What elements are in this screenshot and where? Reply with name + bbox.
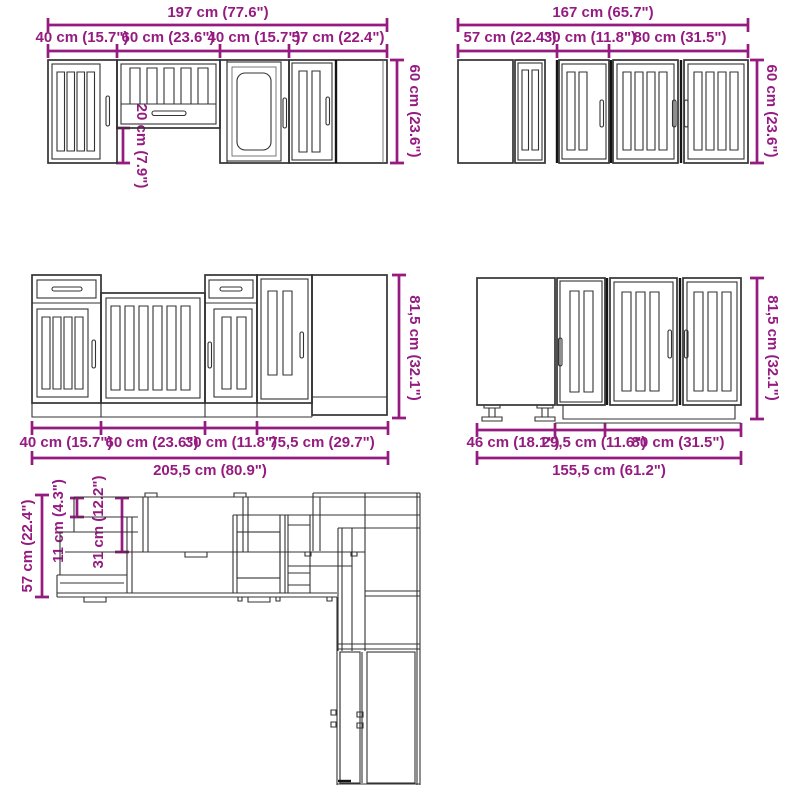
base-cabinet-29 [557, 278, 605, 405]
plan-top-outline [74, 493, 420, 497]
left-door-handle [668, 330, 672, 358]
base-cabinet-80-double-door [610, 278, 741, 405]
height-dimension-line [750, 278, 764, 419]
door-slats [42, 317, 83, 389]
wall-cabinet-80-double-door [613, 60, 748, 163]
total-width-label: 197 cm (77.6") [167, 4, 268, 21]
height-dimension-line [390, 60, 404, 163]
side-panel [477, 278, 555, 405]
segment-width-label: 40 cm (15.7") [36, 29, 129, 46]
right-door-slats [694, 72, 738, 150]
base-cabinet-40-drawer-door [32, 275, 101, 403]
wall-run-left: 197 cm (77.6") 40 cm (15.7") 60 cm (23.6… [36, 4, 424, 188]
drawer-front [209, 280, 253, 298]
glass-panel [237, 73, 271, 150]
base-corner-cabinet-75 [257, 275, 387, 415]
plan-hinge-tabs [331, 710, 363, 728]
door-panel [37, 309, 88, 397]
wall-corner-side-panel-57 [458, 60, 545, 163]
plan-view-dimensions: 57 cm (22.4") 11 cm (4.3") 31 cm (12.2") [19, 475, 129, 597]
left-door-slats [622, 292, 659, 391]
door-slats [222, 317, 246, 389]
plan-vertical-leg [337, 493, 420, 785]
wall-cabinet-60-over-hood [117, 60, 220, 128]
cabinet-outline [220, 60, 289, 163]
plan-line-art [57, 493, 420, 785]
side-panel [458, 60, 513, 163]
door-handle [152, 111, 186, 116]
height-label: 60 cm (23.6") [406, 65, 423, 158]
segment-width-label: 57 cm (22.4") [292, 29, 385, 46]
right-door-slats [694, 292, 731, 391]
left-door-outline [610, 278, 677, 405]
wall-cabinet-depth-label: 31 cm (12.2") [90, 475, 107, 568]
kitchen-cabinet-dimension-diagram: 197 cm (77.6") 40 cm (15.7") 60 cm (23.6… [0, 0, 800, 800]
plinth [32, 403, 312, 417]
plan-corner-structure [285, 493, 420, 651]
segment-dimension-line [458, 44, 748, 58]
base-run-right: 81,5 cm (32.1") 46 cm (18.1") 29,5 cm (1… [467, 278, 782, 479]
drawer-handle [220, 287, 242, 291]
height-dimension-line [750, 60, 764, 163]
door-handle [326, 97, 330, 125]
total-width-label: 155,5 cm (61.2") [552, 462, 666, 479]
segment-width-label: 40 cm (15.7") [208, 29, 301, 46]
segment-width-label: 75,5 cm (29.7") [269, 434, 375, 451]
door-panel [562, 64, 606, 159]
door-panel [227, 62, 281, 161]
wall-run-right-dimensions: 167 cm (65.7") 57 cm (22.4") 30 cm (11.8… [458, 4, 780, 163]
door-inner-frame [232, 67, 276, 156]
door-panel [52, 64, 100, 159]
cabinet-outline [557, 278, 605, 405]
side-panel [312, 275, 387, 415]
base-run-right-dimensions: 81,5 cm (32.1") 46 cm (18.1") 29,5 cm (1… [467, 278, 782, 479]
segment-dimension-line [32, 421, 388, 435]
door-panel [560, 281, 602, 402]
plan-lower-cabinet-box [367, 652, 415, 783]
top-offset-label: 11 cm (4.3") [50, 479, 67, 563]
door-handle [283, 98, 287, 128]
door-handle [92, 340, 96, 368]
right-door-handle [685, 330, 689, 358]
segment-width-label: 30 cm (11.8") [185, 434, 277, 451]
door-slats [299, 71, 320, 152]
base-cabinet-30-drawer-door [205, 275, 257, 403]
base-sink-cabinet-60 [101, 293, 205, 403]
plan-center-drawer-unit [233, 515, 285, 593]
door-slats [130, 68, 208, 104]
door-handle [600, 100, 604, 127]
right-door-panel [688, 64, 744, 159]
segment-width-label: 30 cm (11.8") [544, 29, 636, 46]
right-door-outline [683, 278, 741, 405]
hood-gap-label: 20 cm (7.9") [133, 104, 150, 189]
door-handle [106, 96, 110, 126]
wall-cabinet-30 [559, 60, 609, 163]
hood-gap-dimension-line [116, 128, 130, 163]
plinth [555, 405, 741, 423]
door-slats [522, 70, 539, 150]
top-offset-dimension-line [70, 498, 84, 517]
drawer-handle [52, 287, 82, 291]
left-door-panel [617, 64, 674, 159]
cabinet-outline [117, 60, 220, 128]
counter-depth-dimension-line [35, 495, 49, 597]
plan-handle-notches [84, 552, 357, 602]
door-slats [567, 72, 587, 150]
wall-corner-cabinet-57 [289, 60, 387, 163]
left-door-slats [623, 72, 667, 150]
height-label: 81,5 cm (32.1") [406, 295, 423, 401]
wall-cabinet-40-glass-door [220, 60, 289, 163]
wall-run-right: 167 cm (65.7") 57 cm (22.4") 30 cm (11.8… [458, 4, 780, 163]
door-slats [57, 72, 95, 151]
height-label: 60 cm (23.6") [763, 65, 780, 158]
total-width-label: 167 cm (65.7") [552, 4, 653, 21]
wall-cabinet-40-slat-door [48, 60, 117, 163]
base-run-left: 81,5 cm (32.1") 40 cm (15.7") 60 cm (23.… [20, 275, 424, 479]
base-corner-side-panel-46 [477, 278, 555, 421]
left-door-panel [614, 282, 673, 401]
segment-width-label: 40 cm (15.7") [20, 434, 113, 451]
total-width-label: 205,5 cm (80.9") [153, 462, 267, 479]
segment-width-label: 60 cm (23.6") [122, 29, 215, 46]
adjustable-feet [482, 405, 555, 421]
segment-width-label: 80 cm (31.5") [634, 29, 727, 46]
door-slats [268, 291, 292, 375]
right-door-handle [685, 100, 689, 127]
cabinet-outline [48, 60, 117, 163]
base-run-left-dimensions: 81,5 cm (32.1") 40 cm (15.7") 60 cm (23.… [20, 275, 424, 479]
height-dimension-line [392, 275, 406, 418]
plan-view: 57 cm (22.4") 11 cm (4.3") 31 cm (12.2") [19, 475, 420, 785]
height-label: 81,5 cm (32.1") [764, 295, 781, 401]
door-handle [208, 342, 212, 368]
door-slats [111, 306, 190, 390]
narrow-door-cabinet [515, 60, 545, 163]
counter-depth-label: 57 cm (22.4") [19, 499, 36, 592]
door-slats [570, 291, 593, 392]
drawer-front [37, 280, 96, 298]
cabinet-outline [289, 60, 387, 163]
door-handle [300, 332, 304, 358]
segment-width-label: 57 cm (22.4") [464, 29, 557, 46]
segment-width-label: 80 cm (31.5") [632, 434, 725, 451]
segment-dimension-line [48, 44, 387, 58]
